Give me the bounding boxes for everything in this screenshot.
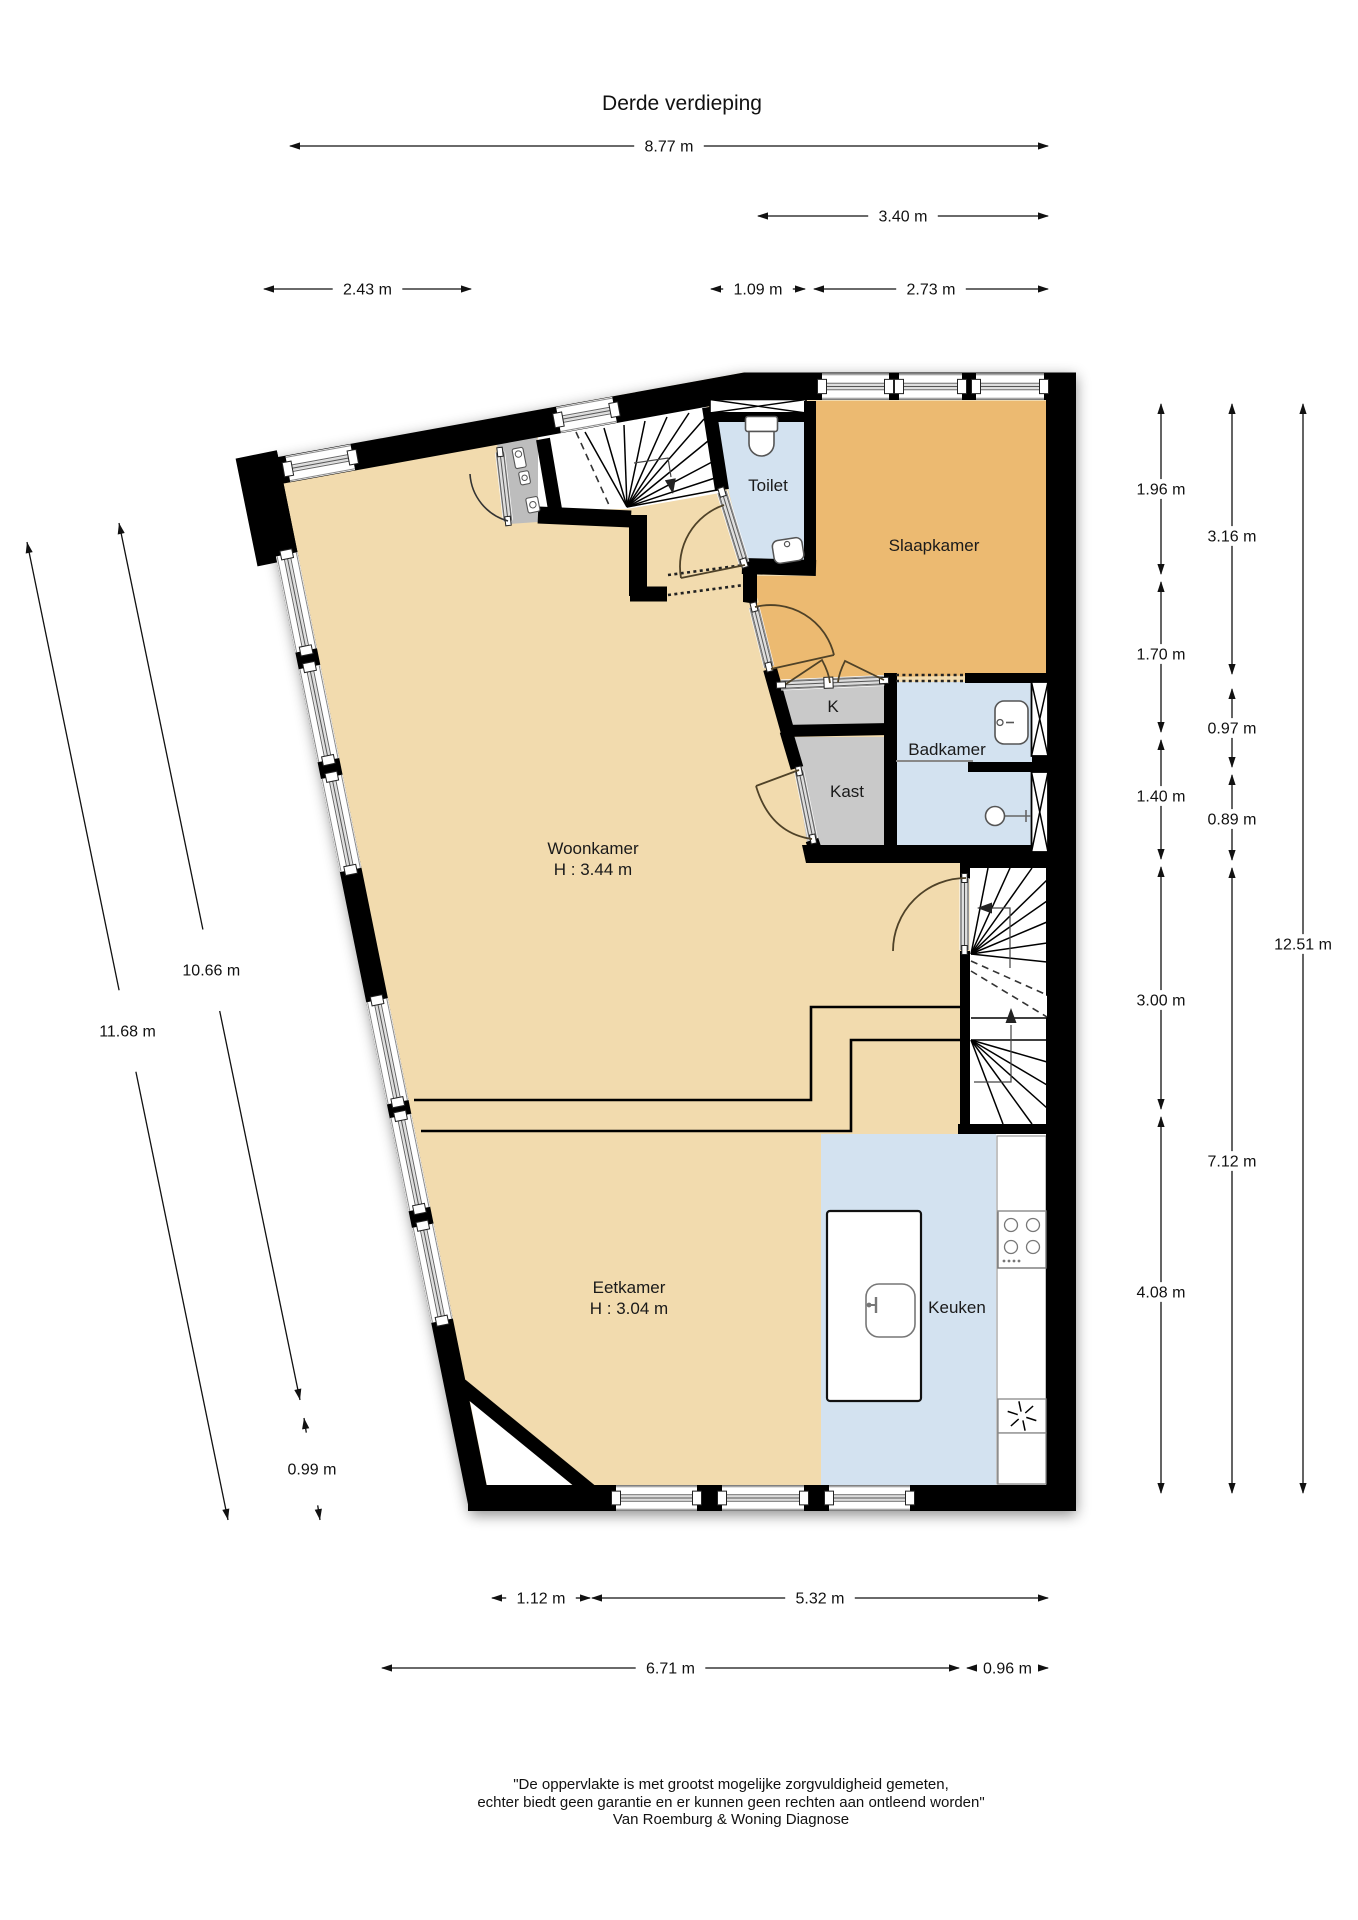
svg-text:H : 3.04 m: H : 3.04 m [590,1299,668,1318]
svg-text:Woonkamer: Woonkamer [547,839,639,858]
svg-text:1.12 m: 1.12 m [517,1590,566,1607]
svg-text:1.70 m: 1.70 m [1137,646,1186,663]
svg-text:7.12 m: 7.12 m [1208,1153,1257,1170]
svg-text:1.96 m: 1.96 m [1137,481,1186,498]
svg-text:5.32 m: 5.32 m [796,1590,845,1607]
svg-text:Badkamer: Badkamer [908,740,986,759]
svg-text:K: K [827,697,839,716]
svg-text:3.40 m: 3.40 m [879,208,928,225]
svg-text:0.97 m: 0.97 m [1208,720,1257,737]
svg-text:Slaapkamer: Slaapkamer [889,536,980,555]
svg-text:6.71 m: 6.71 m [646,1660,695,1677]
svg-text:Eetkamer: Eetkamer [593,1278,666,1297]
svg-text:11.68 m: 11.68 m [99,1023,156,1040]
svg-text:H : 3.44 m: H : 3.44 m [554,860,632,879]
svg-text:4.08 m: 4.08 m [1137,1284,1186,1301]
svg-text:10.66 m: 10.66 m [182,963,240,980]
svg-text:Derde verdieping: Derde verdieping [602,92,762,115]
svg-text:0.99 m: 0.99 m [288,1461,337,1478]
svg-text:Keuken: Keuken [928,1298,986,1317]
svg-text:3.00 m: 3.00 m [1137,992,1186,1009]
svg-text:8.77 m: 8.77 m [645,138,694,155]
svg-text:0.96 m: 0.96 m [983,1660,1032,1677]
svg-text:1.40 m: 1.40 m [1137,788,1186,805]
svg-text:1.09 m: 1.09 m [734,281,783,298]
svg-text:0.89 m: 0.89 m [1208,811,1257,828]
svg-text:Toilet: Toilet [748,476,788,495]
svg-text:12.51 m: 12.51 m [1274,936,1332,953]
svg-text:2.73 m: 2.73 m [907,281,956,298]
svg-text:echter biedt geen garantie en: echter biedt geen garantie en er kunnen … [477,1794,984,1811]
svg-text:"De oppervlakte is met grootst: "De oppervlakte is met grootst mogelijke… [513,1776,949,1793]
svg-text:3.16 m: 3.16 m [1208,528,1257,545]
svg-text:2.43 m: 2.43 m [343,281,392,298]
svg-text:Kast: Kast [830,782,864,801]
svg-text:Van Roemburg & Woning Diagnose: Van Roemburg & Woning Diagnose [613,1811,849,1828]
